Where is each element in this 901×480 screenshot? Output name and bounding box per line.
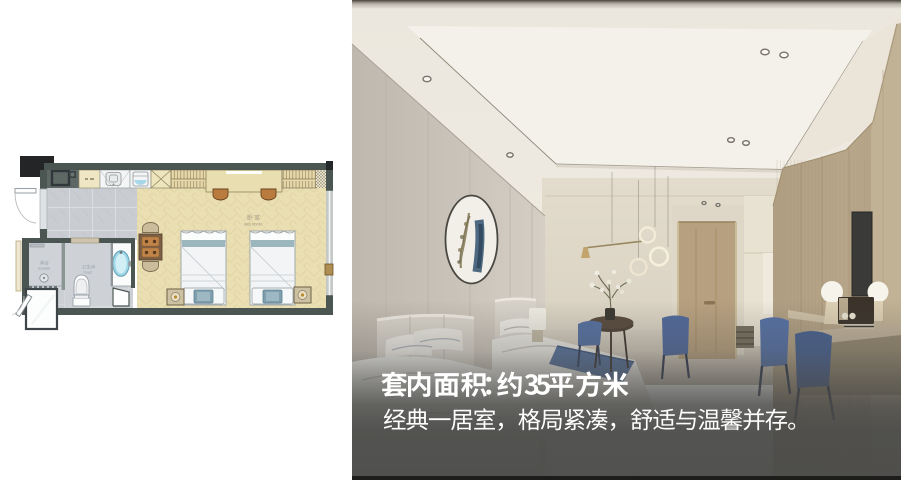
svg-text:TOILET: TOILET xyxy=(83,271,93,275)
svg-text:SHOWER: SHOWER xyxy=(38,267,51,271)
svg-text:BED ROOM: BED ROOM xyxy=(244,223,262,227)
